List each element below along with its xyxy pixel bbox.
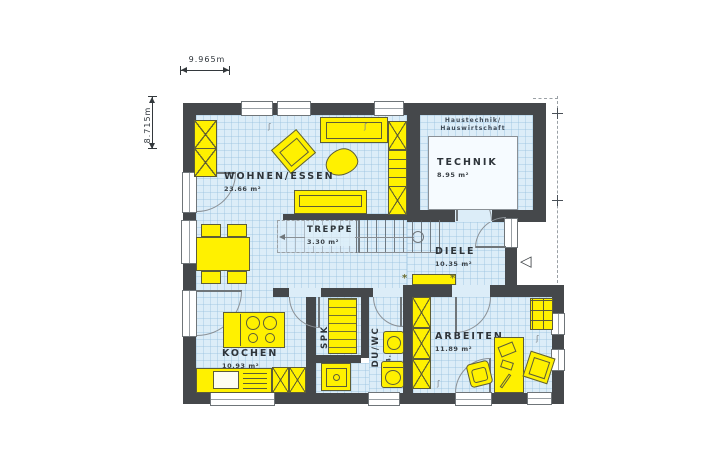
wardrobe-cabinet — [412, 328, 431, 359]
window-bottom-kitchen — [210, 392, 275, 406]
window-top-2 — [277, 101, 311, 116]
dimension-tick — [229, 66, 230, 75]
room-label-technik: TECHNIK 8.95 m² — [437, 157, 498, 179]
dining-chair — [227, 224, 247, 237]
shelf-unit — [194, 120, 217, 149]
dimension-height-line — [152, 97, 153, 149]
sink-drainer — [243, 373, 267, 389]
chair-seat — [471, 366, 489, 383]
desk-item — [500, 359, 514, 370]
dining-chair — [201, 224, 221, 237]
survey-cross-icon — [552, 108, 563, 119]
hob-burner — [246, 316, 260, 330]
room-area-diele: 10.35 m² — [435, 260, 475, 268]
hob-burner — [248, 333, 258, 343]
site-boundary-dash — [557, 96, 558, 283]
entrance-marker-icon: ◁ — [520, 254, 532, 269]
window-mark-icon: ʃ — [437, 379, 440, 388]
wall-exterior-right-arbeiten — [552, 285, 564, 404]
shelf-grid — [530, 298, 553, 330]
window-mark-icon: ʃ — [268, 122, 271, 131]
dimension-width-line — [181, 70, 229, 71]
room-title-wohnen: WOHNEN/ESSEN — [224, 171, 335, 182]
toilet-tank-line — [383, 367, 403, 368]
staircase-arrow-icon — [279, 234, 285, 240]
desk-lamp — [500, 374, 512, 389]
staircase-walkline-end — [412, 231, 424, 243]
window-top-3 — [374, 101, 404, 116]
door-terrace-kochen — [182, 290, 197, 337]
room-label-diele: DIELE 10.35 m² — [435, 246, 475, 268]
shelf-unit — [194, 148, 217, 177]
pantry-shelf — [328, 298, 357, 354]
kitchen-sink — [213, 371, 239, 389]
technik-note-line2: Hauswirtschaft — [413, 125, 533, 133]
room-area-wohnen: 23.66 m² — [224, 185, 335, 193]
room-area-treppe: 3.30 m² — [307, 238, 353, 246]
plant-marker-icon: * — [402, 274, 407, 284]
wall-corridor-kitchen — [273, 288, 373, 297]
desk-laptop — [498, 341, 517, 357]
lounge-seat — [528, 357, 550, 379]
desk — [494, 337, 524, 393]
plant-marker-icon: * — [450, 274, 455, 284]
kitchen-tall-cabinet — [289, 367, 306, 393]
kitchen-tall-cabinet — [272, 367, 289, 393]
wall-exterior-right-technik — [533, 103, 546, 222]
shower — [321, 363, 351, 391]
dining-chair — [227, 271, 247, 284]
toilet-bowl — [385, 370, 401, 385]
bench-seat — [299, 195, 362, 207]
window-mark-icon: ʃ — [364, 122, 367, 131]
hob-burner — [265, 333, 275, 343]
room-label-treppe: TREPPE 3.30 m² — [305, 225, 355, 246]
room-label-wohnen: WOHNEN/ESSEN 23.66 m² — [224, 171, 335, 193]
washbasin — [383, 331, 404, 354]
tall-cabinet-top — [388, 121, 407, 150]
wall-exterior-top — [183, 103, 546, 115]
window-top-1 — [241, 101, 273, 116]
arrow-up-icon — [149, 97, 155, 103]
opening-arbeiten — [452, 285, 490, 297]
dining-chair — [201, 271, 221, 284]
wall-spk-duwc — [361, 297, 369, 358]
floorplan-canvas: 9.965m 8.715m — [0, 0, 715, 475]
window-right-arbeiten-1 — [551, 313, 565, 335]
dimension-tick — [148, 148, 157, 149]
door-terrace-wohnen — [182, 172, 197, 213]
wardrobe-cabinet — [412, 359, 431, 389]
room-title-kochen: KOCHEN — [222, 348, 278, 359]
door-entrance — [504, 218, 518, 248]
shower-drain — [333, 374, 340, 381]
dimension-tick — [180, 66, 181, 75]
tall-cabinet-bottom — [388, 186, 407, 215]
dimension-tick — [148, 96, 157, 97]
window-left-dining — [181, 220, 197, 264]
room-title-technik: TECHNIK — [437, 157, 498, 168]
arrow-left-icon — [181, 67, 187, 73]
opening-duwc — [373, 288, 403, 297]
window-bottom-arbeiten — [527, 392, 552, 405]
sofa-seat — [326, 122, 382, 139]
sideboard-bench — [294, 190, 367, 214]
wardrobe-cabinet — [412, 297, 431, 328]
sofa — [320, 117, 388, 143]
technik-note: Haustechnik/ Hauswirtschaft — [413, 117, 533, 133]
door-arbeiten-exterior — [455, 392, 492, 406]
room-area-technik: 8.95 m² — [437, 171, 498, 179]
toilet — [381, 361, 404, 388]
window-bottom-duwc — [368, 392, 400, 406]
room-title-treppe: TREPPE — [307, 225, 353, 235]
site-boundary-dash — [533, 98, 558, 99]
window-mark-icon: ʃ — [536, 334, 539, 343]
hob-burner — [263, 316, 277, 330]
dimension-width-label: 9.965m — [183, 55, 231, 64]
room-title-diele: DIELE — [435, 246, 475, 257]
dining-table — [196, 237, 250, 271]
technik-note-line1: Haustechnik/ — [413, 117, 533, 125]
tall-cabinet-middle — [388, 149, 407, 187]
room-label-kochen: KOCHEN 10.93 m² — [222, 348, 278, 370]
survey-cross-icon — [552, 195, 563, 206]
basin-bowl — [387, 336, 401, 350]
opening-kochen — [289, 288, 321, 297]
